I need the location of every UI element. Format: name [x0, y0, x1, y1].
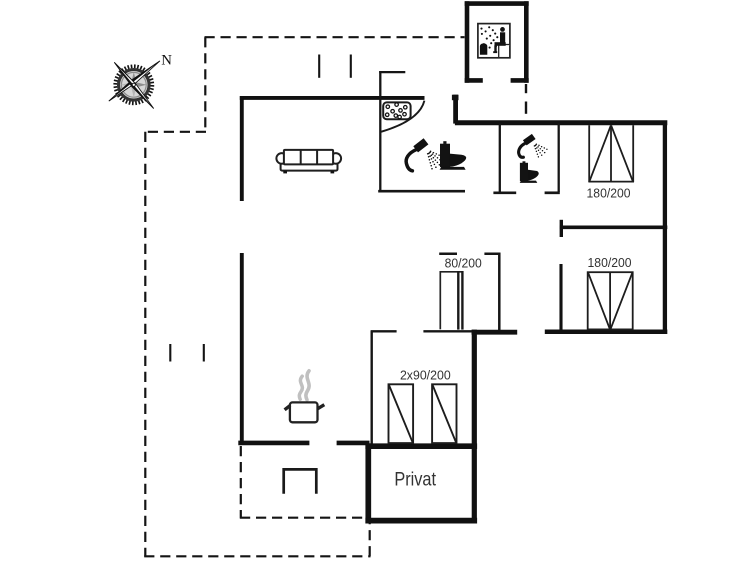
svg-text:N: N: [161, 53, 172, 69]
svg-text:Privat: Privat: [394, 468, 436, 490]
svg-text:80/200: 80/200: [445, 256, 482, 270]
svg-text:2x90/200: 2x90/200: [400, 368, 451, 382]
svg-text:180/200: 180/200: [588, 256, 632, 270]
svg-text:180/200: 180/200: [587, 186, 631, 200]
